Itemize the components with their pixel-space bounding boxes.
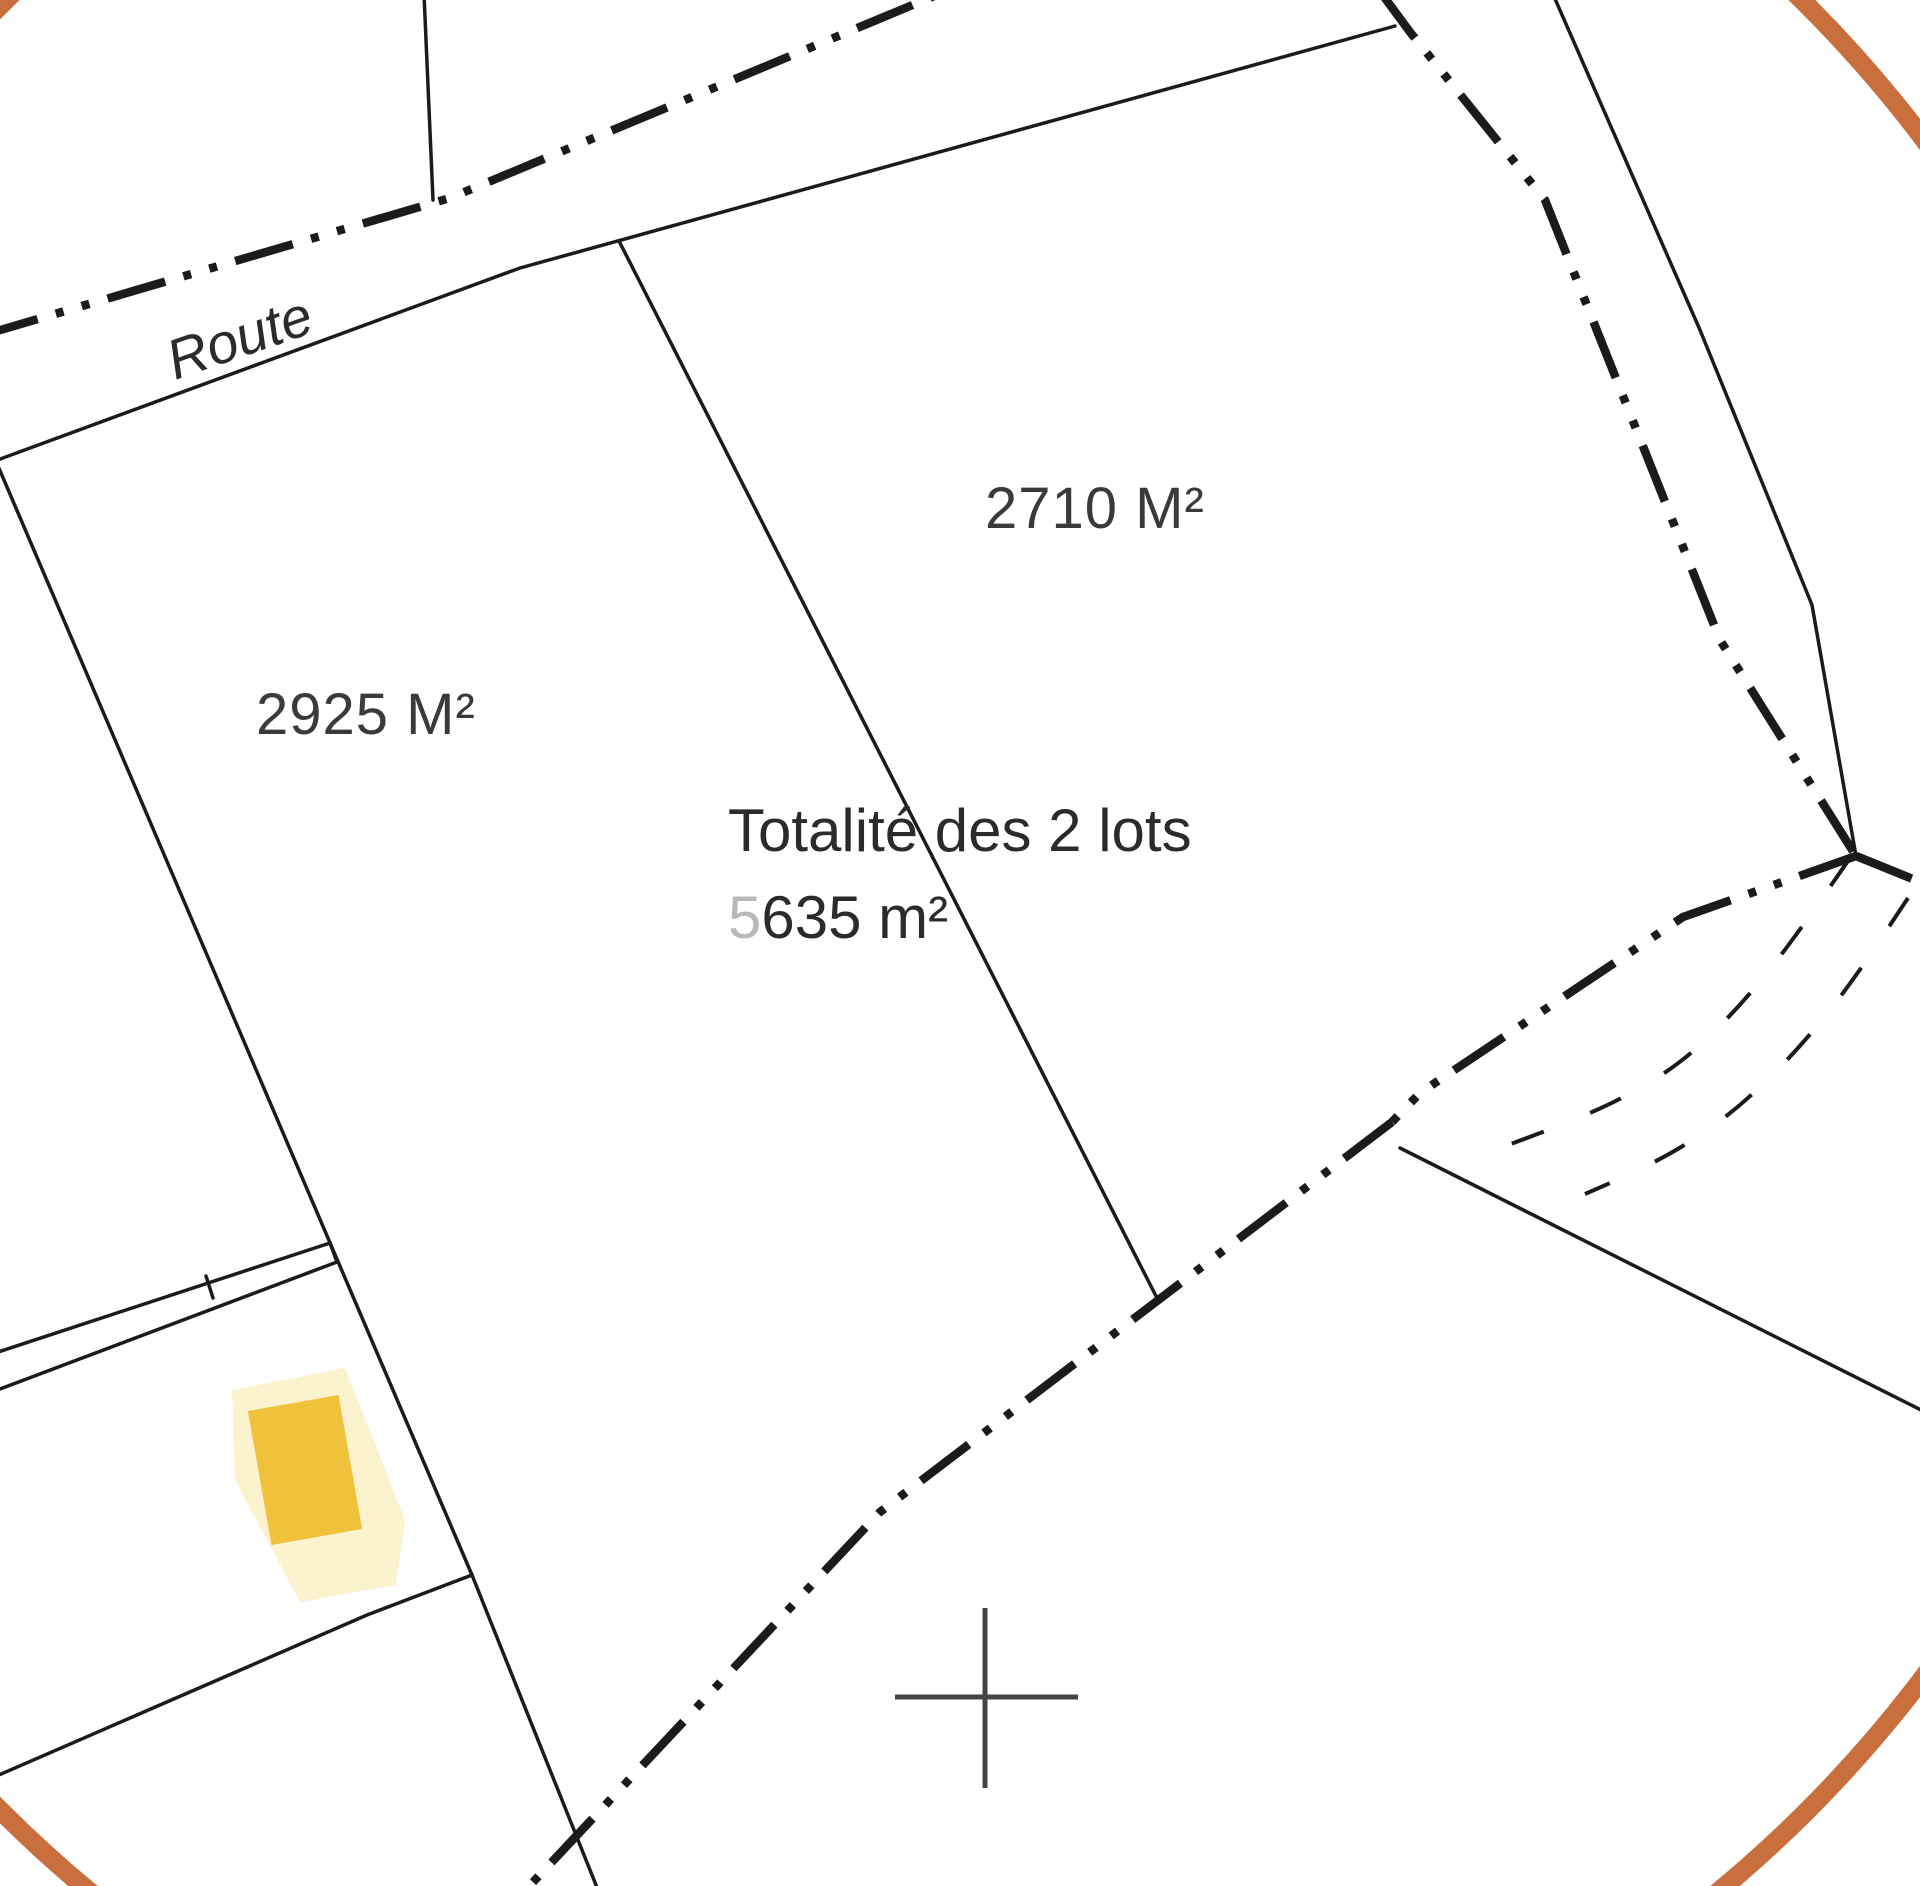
south-boundary-continuation: [472, 1575, 600, 1886]
southeast-parcel-line: [1400, 1148, 1920, 1412]
boundary-mid-descent: [1392, 856, 1856, 1122]
top-vertical-line: [424, 0, 433, 200]
parcel-lines-solid: [0, 0, 1920, 1886]
cadastral-map-canvas: Route 2925 M² 2710 M² Totalité des 2 lot…: [0, 0, 1920, 1886]
total-lots-title: Totalité des 2 lots: [728, 797, 1192, 864]
lane-upper-line: [0, 1243, 330, 1354]
southwest-branch-line: [0, 1575, 472, 1778]
lot-right-area-label: 2710 M²: [985, 476, 1205, 541]
road-label: Route: [158, 283, 320, 391]
east-parcel-line: [1552, 0, 1856, 856]
cadastral-map: Route 2925 M² 2710 M² Totalité des 2 lot…: [0, 0, 1920, 1886]
survey-cross-icon: [895, 1608, 1078, 1788]
boundary-northwest: [0, 0, 958, 336]
commune-boundary-dashdot: [0, 0, 1920, 1886]
track-dash-line-2: [1585, 898, 1908, 1194]
boundary-east-stub: [1856, 856, 1920, 886]
highlight-circle: [0, 0, 1920, 1886]
lot-divider-line: [619, 241, 1158, 1300]
total-area-first-digit: 5: [728, 884, 761, 951]
total-area-rest: 635 m²: [761, 884, 948, 951]
boundary-south-descent: [520, 1122, 1392, 1886]
lot-left-area-label: 2925 M²: [256, 682, 476, 747]
total-lots-area: 5635 m²: [728, 884, 948, 951]
boundary-northeast: [1379, 0, 1856, 856]
track-dash-line-1: [1495, 858, 1850, 1150]
lane-mid-tick: [206, 1276, 213, 1298]
lane-lower-line: [0, 1262, 337, 1392]
